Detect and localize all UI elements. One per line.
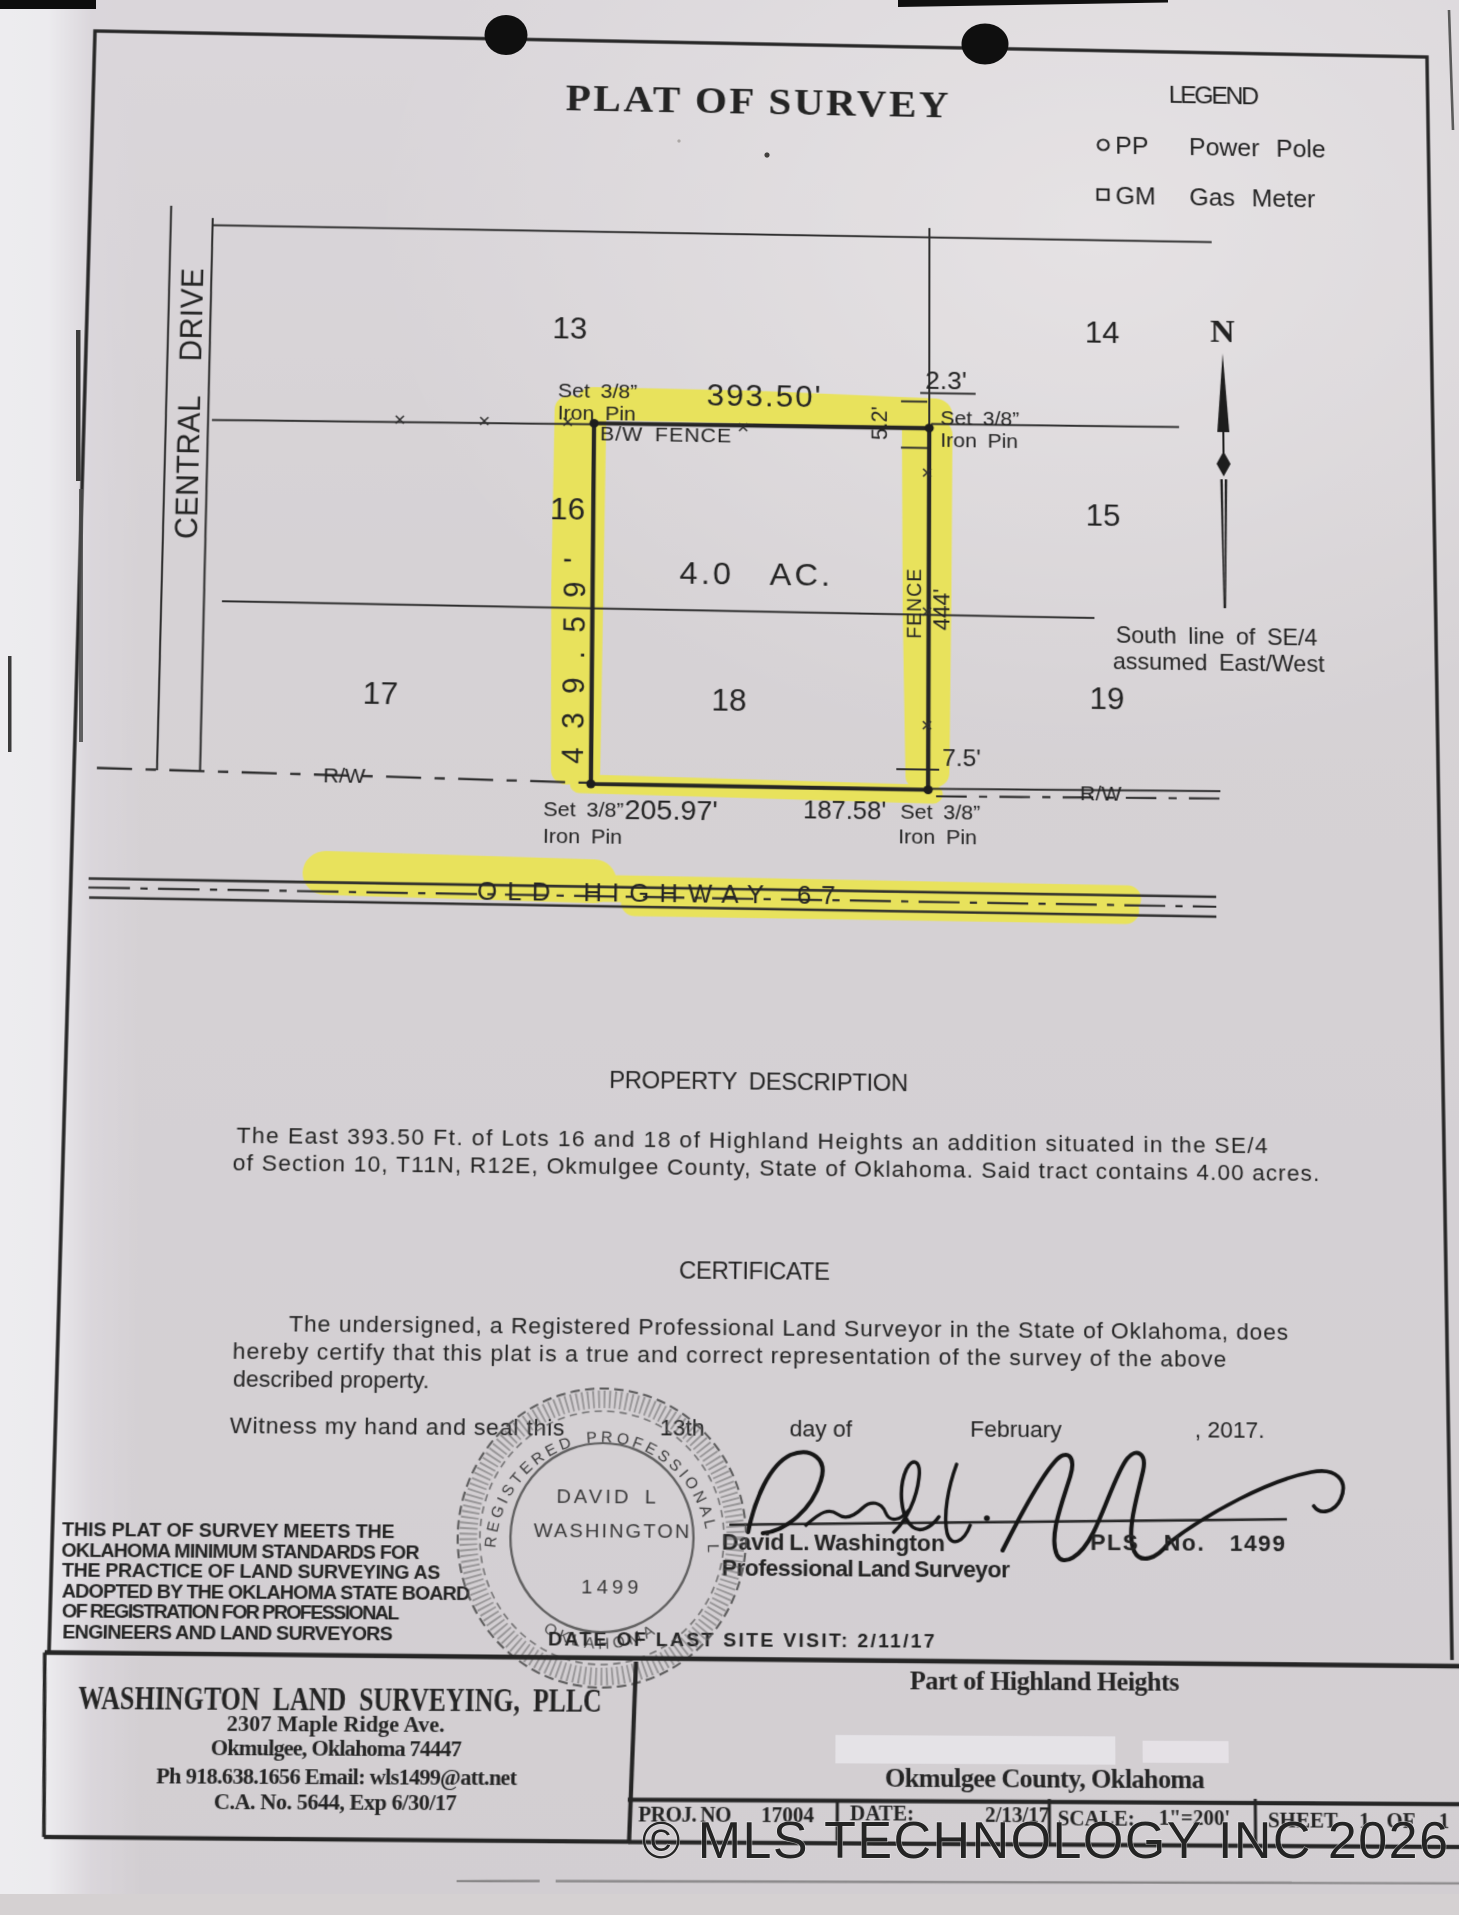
svg-text:Set 3/8”: Set 3/8” — [940, 407, 1019, 431]
svg-text:Iron Pin: Iron Pin — [543, 825, 623, 849]
svg-text:Ph 918.638.1656 Email: wls1499: Ph 918.638.1656 Email: wls1499@att.net — [156, 1766, 518, 1791]
svg-text:2307 Maple Ridge Ave.: 2307 Maple Ridge Ave. — [226, 1713, 444, 1738]
svg-text:205.97': 205.97' — [624, 794, 718, 827]
svg-text:LEGEND: LEGEND — [1169, 83, 1261, 111]
svg-text:February: February — [970, 1416, 1062, 1443]
svg-text:15: 15 — [1086, 500, 1121, 533]
svg-text:17004: 17004 — [761, 1805, 814, 1828]
svg-text:4.0 AC.: 4.0 AC. — [679, 556, 833, 593]
svg-text:Witness my hand and seal this: Witness my hand and seal this — [230, 1412, 565, 1441]
svg-text:14: 14 — [1085, 317, 1120, 350]
svg-text:17: 17 — [362, 678, 398, 712]
svg-text:19: 19 — [1089, 683, 1124, 716]
svg-text:CERTIFICATE: CERTIFICATE — [679, 1258, 831, 1285]
svg-text:DATE:: DATE: — [850, 1803, 914, 1826]
svg-text:1: 1 — [1439, 1811, 1450, 1834]
svg-text:Professional Land Surveyor: Professional Land Surveyor — [722, 1555, 1011, 1583]
svg-text:assumed East/West: assumed East/West — [1113, 649, 1326, 677]
svg-text:OF: OF — [1386, 1811, 1415, 1834]
svg-text:Set 3/8”: Set 3/8” — [900, 800, 980, 824]
svg-text:PROPERTY DESCRIPTION: PROPERTY DESCRIPTION — [609, 1067, 909, 1096]
svg-text:David L. Washington: David L. Washington — [722, 1528, 945, 1556]
svg-text:1"=200': 1"=200' — [1159, 1808, 1231, 1831]
svg-text:DAVID L: DAVID L — [556, 1485, 659, 1508]
svg-text:Part of Highland Heights: Part of Highland Heights — [910, 1667, 1180, 1697]
svg-text:13: 13 — [552, 313, 587, 346]
svg-text:Okmulgee, Oklahoma 74447: Okmulgee, Oklahoma 74447 — [210, 1737, 462, 1762]
svg-text:PROJ. NO: PROJ. NO — [638, 1804, 731, 1827]
svg-text:ENGINEERS AND LAND SURVEYORS: ENGINEERS AND LAND SURVEYORS — [62, 1622, 393, 1645]
svg-text:Set 3/8”: Set 3/8” — [543, 798, 624, 822]
svg-text:THE PRACTICE OF LAND SURVEYING: THE PRACTICE OF LAND SURVEYING AS — [62, 1560, 441, 1584]
svg-text:SHEET: SHEET — [1268, 1811, 1338, 1834]
svg-text:WASHINGTON: WASHINGTON — [534, 1519, 692, 1542]
svg-text:PP: PP — [1115, 133, 1148, 160]
svg-text:18: 18 — [711, 684, 746, 718]
svg-text:Iron Pin: Iron Pin — [898, 825, 977, 849]
svg-text:PLS No. 1499: PLS No. 1499 — [1090, 1529, 1285, 1557]
svg-text:SCALE:: SCALE: — [1058, 1809, 1135, 1832]
svg-text:described property.: described property. — [233, 1366, 430, 1394]
svg-text:N: N — [1210, 313, 1235, 350]
svg-text:GM: GM — [1115, 184, 1155, 211]
svg-text:R/W: R/W — [1080, 782, 1122, 806]
svg-text:THIS PLAT OF SURVEY MEETS THE: THIS PLAT OF SURVEY MEETS THE — [62, 1519, 395, 1542]
svg-text:CENTRAL DRIVE: CENTRAL DRIVE — [169, 267, 210, 539]
svg-text:Gas Meter: Gas Meter — [1189, 185, 1315, 213]
svg-text:2.3': 2.3' — [925, 367, 966, 395]
svg-text:Power Pole: Power Pole — [1189, 135, 1326, 164]
svg-text:1499: 1499 — [581, 1575, 643, 1598]
svg-text:day of: day of — [790, 1415, 854, 1442]
svg-text:C.A. No. 5644, Exp 6/30/17: C.A. No. 5644, Exp 6/30/17 — [213, 1791, 456, 1816]
svg-text:1: 1 — [1359, 1811, 1370, 1834]
svg-text:South line of SE/4: South line of SE/4 — [1116, 623, 1318, 651]
svg-text:R/W: R/W — [323, 764, 366, 788]
svg-text:Okmulgee County, Oklahoma: Okmulgee County, Oklahoma — [885, 1764, 1205, 1794]
svg-text:, 2017.: , 2017. — [1195, 1416, 1265, 1443]
svg-text:B/W FENCE: B/W FENCE — [600, 423, 732, 448]
svg-text:PLAT OF SURVEY: PLAT OF SURVEY — [565, 75, 948, 126]
svg-text:OF REGISTRATION FOR PROFESSION: OF REGISTRATION FOR PROFESSIONAL — [62, 1601, 400, 1624]
svg-text:2/13/17: 2/13/17 — [985, 1805, 1050, 1828]
